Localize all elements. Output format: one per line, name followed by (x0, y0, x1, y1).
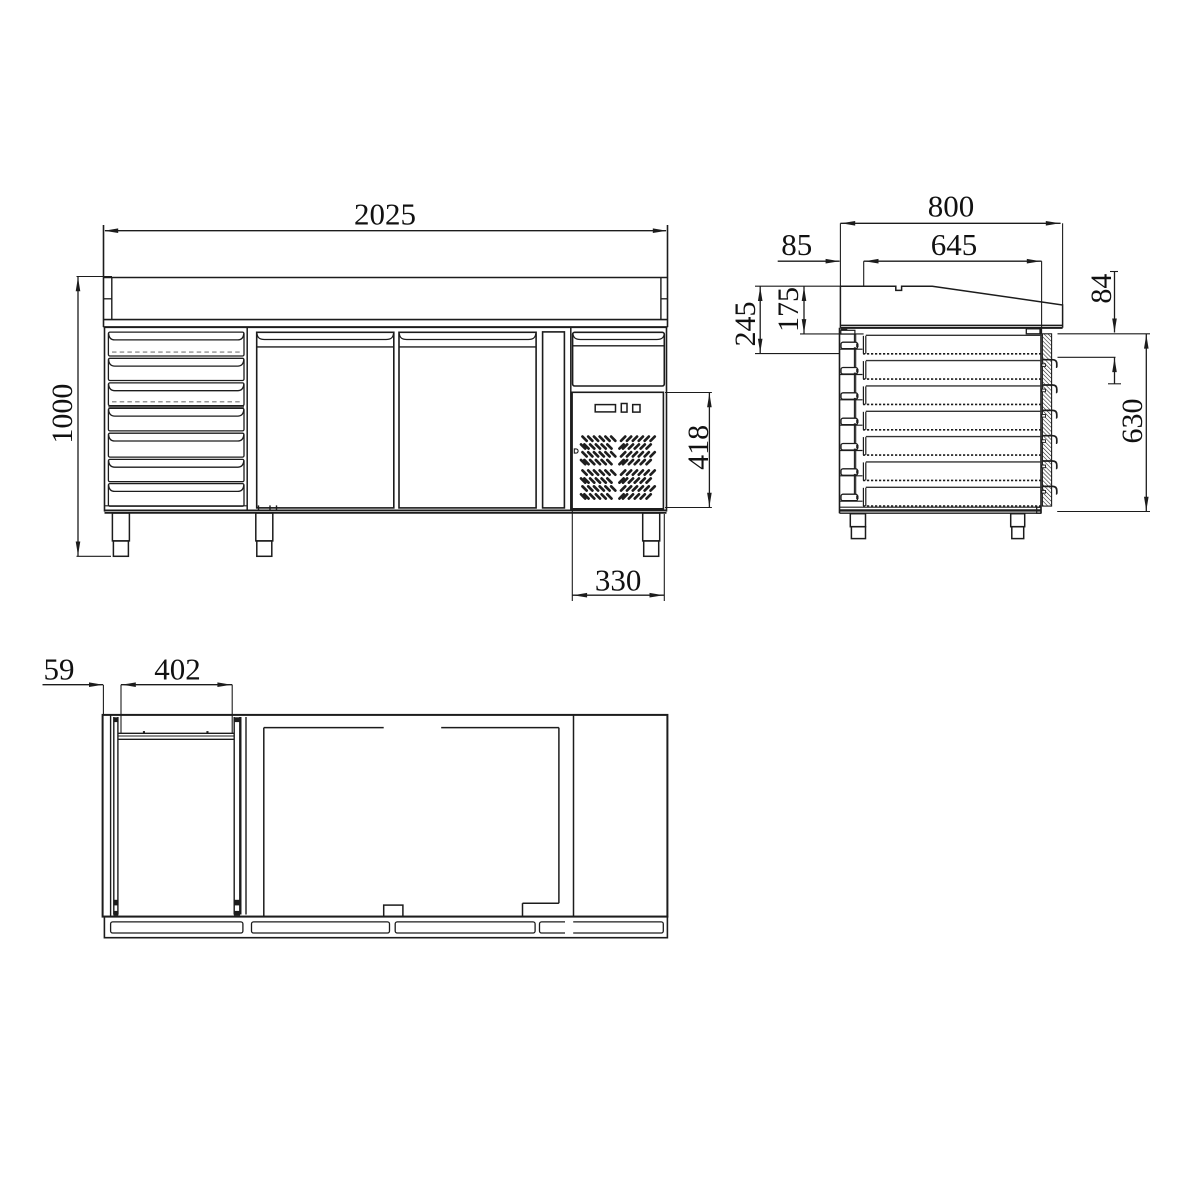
svg-text:418: 418 (682, 425, 715, 470)
svg-text:645: 645 (931, 227, 978, 262)
svg-text:402: 402 (154, 652, 201, 687)
svg-text:245: 245 (729, 302, 762, 347)
svg-text:2025: 2025 (354, 197, 416, 232)
svg-text:85: 85 (781, 227, 812, 262)
svg-text:800: 800 (928, 189, 975, 224)
svg-text:175: 175 (772, 287, 805, 332)
svg-text:330: 330 (595, 563, 642, 598)
svg-text:1000: 1000 (46, 384, 79, 444)
svg-text:59: 59 (44, 652, 75, 687)
svg-text:84: 84 (1085, 274, 1118, 304)
svg-text:630: 630 (1116, 399, 1149, 444)
